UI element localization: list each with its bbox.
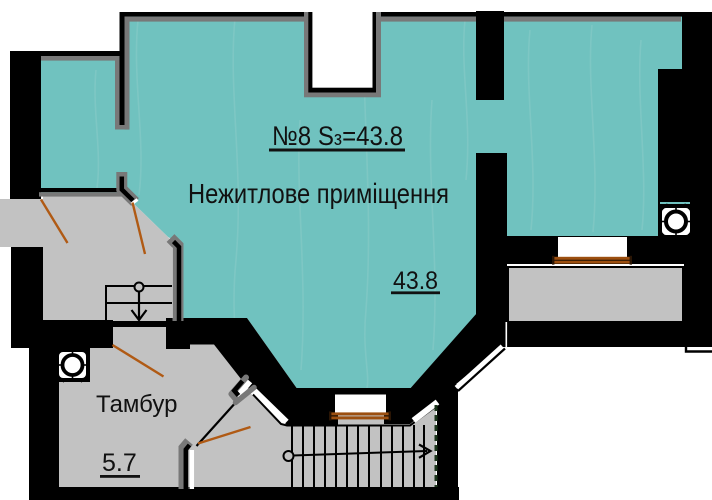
svg-text:5.7: 5.7 [102, 449, 137, 477]
svg-text:43.8: 43.8 [393, 267, 438, 295]
svg-text:Тамбур: Тамбур [96, 391, 177, 418]
svg-text:Нежитлове приміщення: Нежитлове приміщення [188, 178, 449, 209]
